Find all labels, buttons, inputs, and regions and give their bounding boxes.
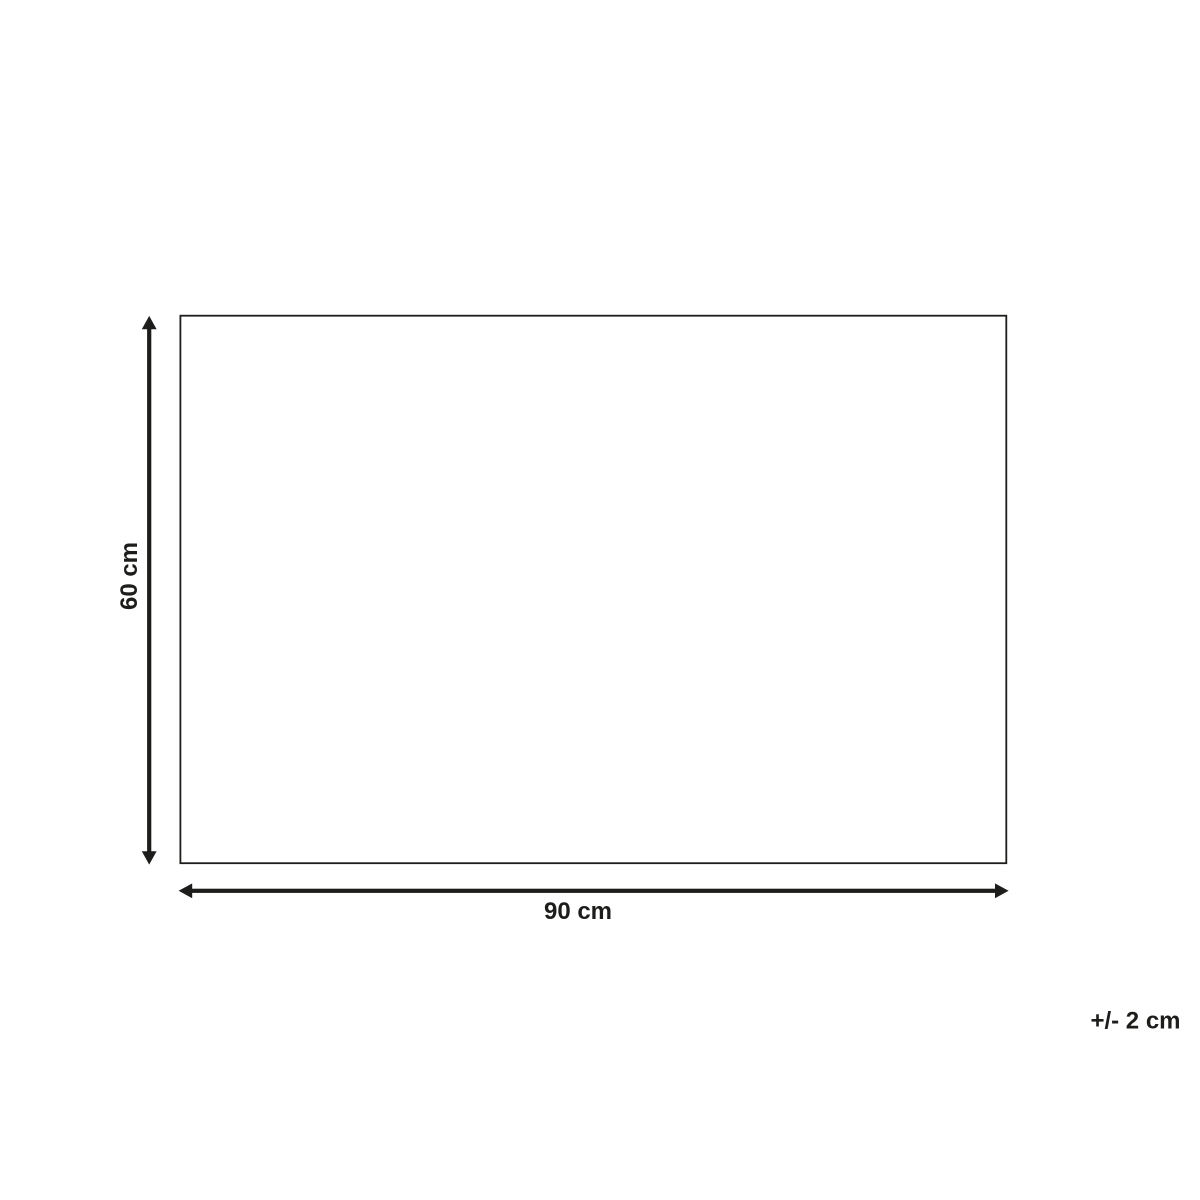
svg-text:+/- 2 cm: +/- 2 cm [1090,1008,1180,1035]
svg-text:60 cm: 60 cm [116,542,143,610]
svg-text:90 cm: 90 cm [544,898,612,925]
